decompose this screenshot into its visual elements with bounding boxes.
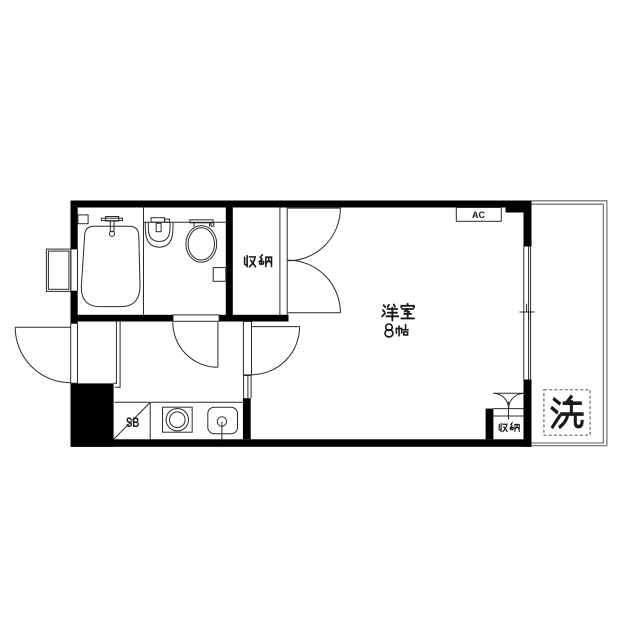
svg-text:AC: AC: [472, 210, 485, 220]
svg-text:SB: SB: [126, 414, 140, 430]
